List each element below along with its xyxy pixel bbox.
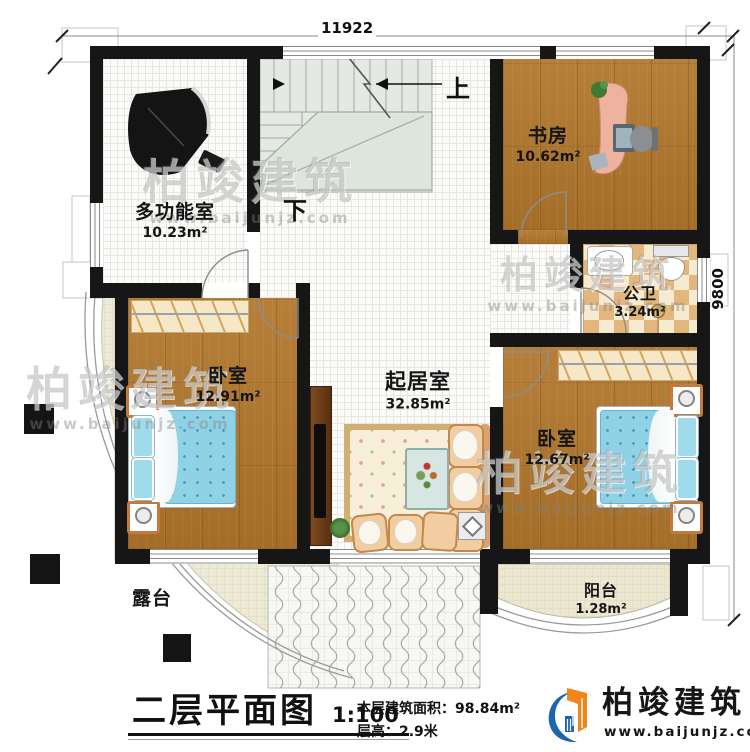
stair-down-label: 下: [283, 191, 307, 226]
room-label-bedroom-right: 卧室 12.67m²: [524, 424, 589, 468]
wall-segment: [697, 59, 710, 258]
plan-title: 二层平面图: [132, 694, 317, 728]
dimension-width: 11922: [318, 19, 376, 37]
room-label-terrace: 露台: [132, 584, 172, 611]
nightstand: [670, 384, 703, 417]
room-area: 10.23m²: [142, 225, 207, 241]
coffee-table: [405, 448, 449, 510]
nightstand: [127, 501, 160, 534]
room-area: 12.67m²: [524, 452, 589, 468]
wall-segment: [296, 283, 310, 298]
sink-basin: [594, 250, 624, 271]
wall-segment: [568, 230, 710, 244]
sofa-pillow: [452, 430, 478, 460]
floor-plan-canvas: 柏竣建筑 www.baijunjz.com 柏竣建筑 www.baijunjz.…: [0, 0, 750, 752]
window: [90, 203, 103, 267]
pillow: [132, 416, 154, 458]
pillow: [132, 458, 154, 500]
floor-corridor: [490, 244, 570, 333]
room-label-living: 起居室 32.85m²: [385, 366, 451, 413]
wall-segment: [297, 298, 310, 564]
dimension-height: 9800: [706, 268, 730, 310]
floor-height-line: 层高：2.9米: [357, 721, 438, 741]
wall-segment: [490, 59, 503, 230]
balcony-sliding-door: [530, 549, 670, 564]
wall-segment: [670, 564, 688, 616]
room-area: 3.24m²: [614, 305, 665, 320]
wall-segment: [90, 46, 283, 59]
pillow: [676, 416, 698, 458]
room-name: 卧室: [537, 424, 577, 451]
wall-segment: [480, 564, 498, 614]
wall-segment: [540, 46, 556, 59]
window: [150, 549, 258, 564]
wall-segment: [258, 549, 330, 564]
nightstand: [670, 501, 703, 534]
wall-segment: [90, 59, 103, 203]
brand-website: www.baijunjz.com: [604, 724, 750, 740]
tv-icon: [314, 424, 326, 518]
window: [556, 46, 654, 59]
wall-segment: [490, 230, 518, 244]
room-area: 10.62m²: [515, 149, 580, 165]
room-name: 起居室: [385, 366, 451, 396]
building-area-line: 本层建筑面积：98.84m²: [357, 698, 520, 718]
wall-segment: [115, 549, 150, 564]
stair-up-label: 上: [446, 69, 470, 104]
room-area: 1.28m²: [575, 602, 626, 617]
room-label-bathroom: 公卫 3.24m²: [614, 280, 665, 320]
brand-logo-icon: [542, 682, 602, 746]
room-area: 32.85m²: [385, 397, 450, 413]
sofa-pillow: [358, 520, 381, 545]
wardrobe-bedroom-right: [558, 350, 699, 381]
wall-segment: [654, 46, 710, 59]
pillow: [676, 458, 698, 500]
room-label-multi: 多功能室 10.23m²: [135, 197, 215, 241]
room-label-bedroom-left: 卧室 12.91m²: [195, 361, 260, 405]
toilet-tank: [653, 245, 689, 257]
sofa-pillow: [452, 472, 478, 502]
wall-segment: [570, 244, 583, 288]
wall-segment: [490, 407, 503, 549]
plant-icon: [330, 518, 350, 538]
duvet: [648, 410, 674, 502]
room-name: 书房: [528, 121, 568, 148]
room-label-balcony: 阳台 1.28m²: [575, 577, 626, 617]
sofa-pillow: [394, 519, 417, 544]
wall-segment: [670, 549, 710, 564]
sofa-seat: [421, 511, 460, 552]
brand-name: 柏竣建筑: [602, 688, 746, 719]
window: [283, 46, 540, 59]
roof-tiles: [268, 566, 480, 688]
wall-segment: [90, 283, 202, 298]
room-name: 露台: [132, 584, 172, 611]
room-label-study: 书房 10.62m²: [515, 121, 580, 165]
wall-segment: [248, 283, 260, 298]
wall-segment: [480, 549, 530, 564]
room-name: 卧室: [208, 361, 248, 388]
room-area: 12.91m²: [195, 389, 260, 405]
wall-segment: [490, 333, 710, 347]
room-name: 阳台: [584, 577, 618, 601]
room-name: 多功能室: [135, 197, 215, 224]
duvet: [152, 410, 178, 502]
floor-multi-room: [103, 59, 247, 283]
floor-study-door-threshold: [518, 230, 568, 244]
wall-segment: [247, 59, 260, 232]
wardrobe-bedroom-left: [131, 300, 249, 333]
room-name: 公卫: [623, 280, 657, 304]
